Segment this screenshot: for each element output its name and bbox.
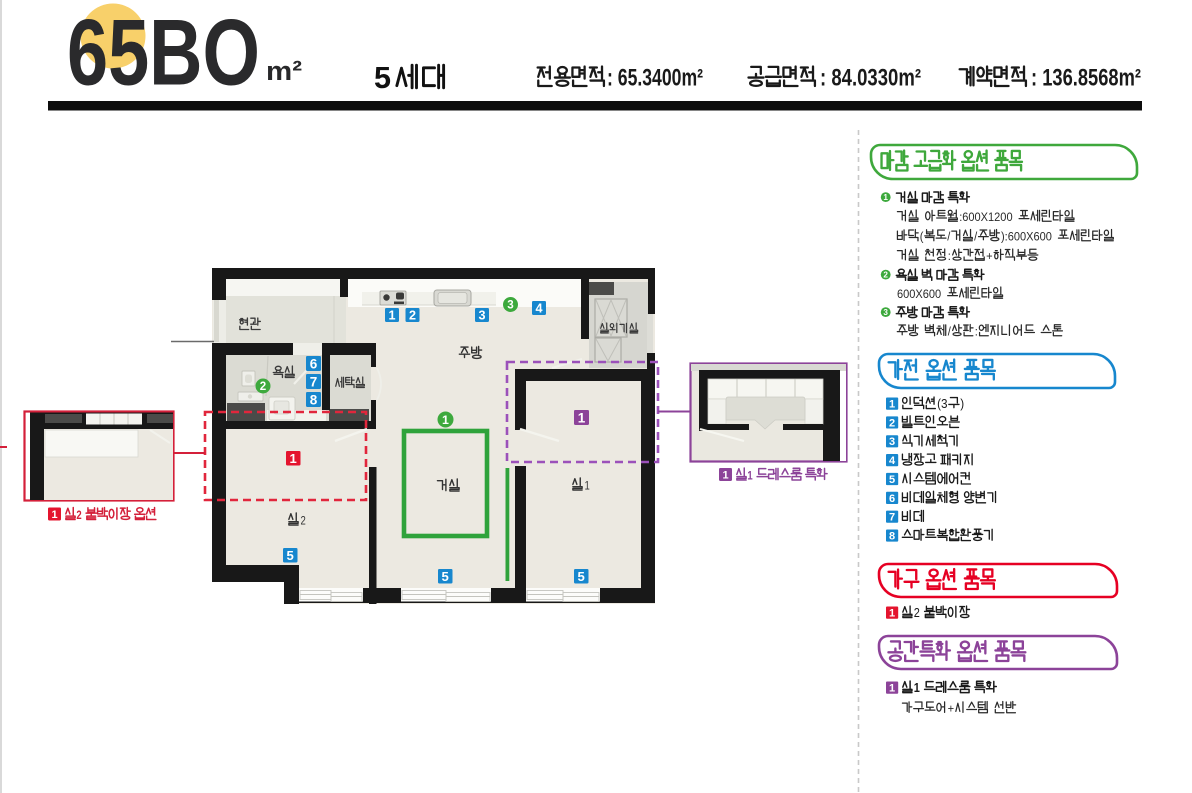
svg-text:2: 2: [260, 380, 266, 393]
svg-text:3: 3: [478, 309, 485, 323]
svg-text:8: 8: [310, 392, 318, 407]
svg-text:5: 5: [889, 474, 895, 486]
svg-text:+: +: [986, 249, 993, 263]
svg-text::: :: [975, 324, 978, 338]
svg-text:1: 1: [883, 193, 888, 202]
svg-text:1: 1: [889, 683, 895, 695]
svg-text:2: 2: [914, 606, 920, 620]
svg-text::600X1200: :600X1200: [959, 210, 1013, 224]
svg-text::: :: [948, 249, 951, 263]
svg-text:: 65.3400m²: : 65.3400m²: [607, 65, 703, 92]
svg-text:8: 8: [889, 531, 895, 543]
svg-text:2: 2: [409, 309, 416, 323]
svg-text:6: 6: [310, 356, 318, 371]
svg-text:1: 1: [51, 509, 57, 521]
svg-text:1: 1: [388, 309, 395, 323]
svg-text:3: 3: [883, 308, 888, 317]
svg-text:65BO: 65BO: [67, 0, 260, 105]
svg-text:5: 5: [374, 60, 391, 95]
svg-text:7: 7: [310, 374, 318, 389]
svg-text:1: 1: [722, 470, 728, 482]
svg-text:/: /: [974, 229, 978, 243]
svg-text:600X600: 600X600: [897, 287, 941, 301]
svg-text:2: 2: [76, 508, 82, 522]
svg-text:3: 3: [507, 299, 514, 312]
svg-text:4: 4: [889, 455, 896, 467]
svg-text:1: 1: [914, 681, 920, 695]
svg-text:1: 1: [290, 451, 297, 466]
svg-text:2: 2: [883, 270, 888, 279]
svg-text:2: 2: [301, 513, 307, 527]
svg-text:: 136.8568m²: : 136.8568m²: [1031, 65, 1141, 92]
svg-text:m²: m²: [266, 56, 302, 86]
svg-text:1: 1: [578, 410, 586, 425]
svg-text:/: /: [947, 229, 951, 243]
svg-text:):600X600: ):600X600: [1001, 229, 1052, 243]
svg-text:): ): [960, 397, 964, 411]
svg-text:3: 3: [889, 436, 895, 448]
svg-text:1: 1: [889, 399, 895, 411]
svg-text:(3: (3: [937, 397, 947, 411]
svg-text:1: 1: [585, 478, 591, 492]
svg-text:5: 5: [287, 548, 294, 563]
svg-text:4: 4: [535, 302, 542, 316]
svg-text:: 84.0330m²: : 84.0330m²: [820, 65, 921, 92]
svg-text:1: 1: [442, 413, 449, 427]
svg-text:6: 6: [889, 493, 895, 505]
svg-text:5: 5: [442, 569, 449, 584]
svg-text:2: 2: [889, 417, 895, 429]
svg-text:1: 1: [889, 608, 895, 620]
svg-text:/: /: [948, 324, 952, 338]
svg-text:1: 1: [747, 468, 753, 482]
svg-text:5: 5: [578, 569, 585, 584]
svg-text:7: 7: [889, 512, 895, 524]
svg-text:+: +: [948, 701, 955, 715]
